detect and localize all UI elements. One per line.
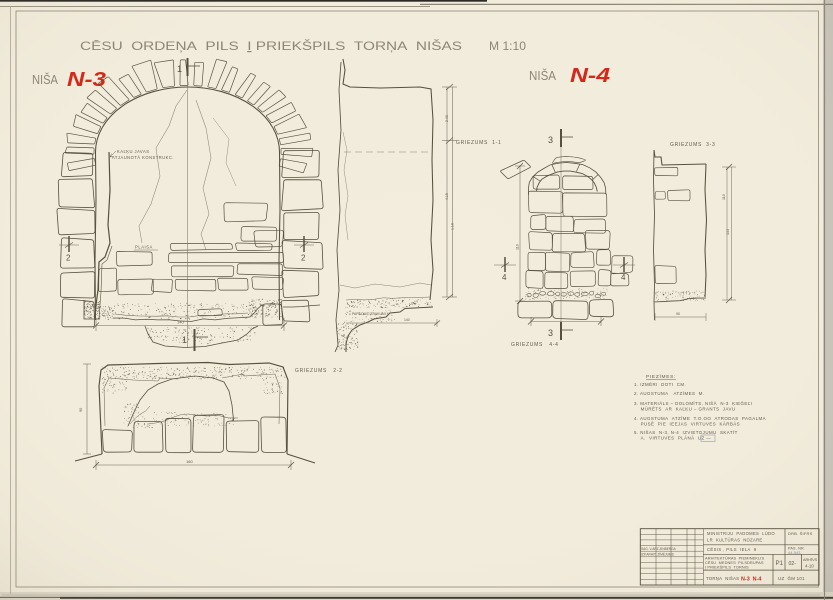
svg-text:UZ ǦM 101: UZ ǦM 101 xyxy=(778,576,805,581)
svg-text:4: 4 xyxy=(502,273,507,282)
svg-text:NIŠA: NIŠA xyxy=(529,68,557,83)
svg-text:90: 90 xyxy=(676,312,680,316)
svg-text:2. AUGSTUMA ATZĪMES M.: 2. AUGSTUMA ATZĪMES M. xyxy=(634,391,704,396)
svg-text:ATJAUNOTĀ KONSTRUKC.: ATJAUNOTĀ KONSTRUKC. xyxy=(112,155,174,160)
svg-text:1: 1 xyxy=(177,64,182,74)
svg-text:140: 140 xyxy=(177,320,184,325)
svg-text:CĒSIS , PILS IELA 9: CĒSIS , PILS IELA 9 xyxy=(707,547,757,552)
svg-text:GRIEZUMS 1-1: GRIEZUMS 1-1 xyxy=(456,140,502,146)
svg-text:4: 4 xyxy=(621,273,626,282)
svg-text:PUSĒ PIE IEEJAS VIRTUVES K: PUSĒ PIE IEEJAS VIRTUVES KĀRBĀS xyxy=(634,422,740,427)
svg-text:4. AUGSTUMA ATZĪME T.O.OO A: 4. AUGSTUMA ATZĪME T.O.OO ATRODAS PAGALM… xyxy=(634,416,766,421)
svg-text:1.10: 1.10 xyxy=(451,223,455,230)
svg-text:MŪRĒTS AR KAĽĶU – GRANTS JA: MŪRĒTS AR KAĽĶU – GRANTS JAVU xyxy=(634,407,736,412)
svg-text:5. NIŠAS N-3, N-4 IZVIETOJUM: 5. NIŠAS N-3, N-4 IZVIETOJUMU SKATĪT xyxy=(634,430,738,435)
svg-text:A. VIRTUVES PLĀNĀ UZ —: A. VIRTUVES PLĀNĀ UZ — xyxy=(634,436,711,441)
svg-text:LR KULTŪRAS NOZARE: LR KULTŪRAS NOZARE xyxy=(707,538,762,543)
svg-text:90: 90 xyxy=(79,408,83,412)
svg-text:110: 110 xyxy=(722,194,726,200)
svg-text:N-3: N-3 xyxy=(67,69,106,91)
svg-text:PLAISA: PLAISA xyxy=(135,245,153,250)
svg-text:KAĽĶU JAVAS: KAĽĶU JAVAS xyxy=(117,149,149,154)
svg-text:160: 160 xyxy=(186,459,193,464)
svg-text:DRB. ŠIFRS: DRB. ŠIFRS xyxy=(788,531,813,536)
svg-text:1. IZMĒRI DOTI CM.: 1. IZMĒRI DOTI CM. xyxy=(634,382,686,387)
svg-text:2: 2 xyxy=(66,254,71,263)
svg-text:2: 2 xyxy=(301,254,306,263)
svg-text:GRIEZUMS 2-2: GRIEZUMS 2-2 xyxy=(295,368,343,374)
svg-text:4-10: 4-10 xyxy=(805,564,814,569)
svg-text:3: 3 xyxy=(548,135,553,145)
svg-text:P1: P1 xyxy=(776,560,784,567)
svg-text:PAS. NR.: PAS. NR. xyxy=(788,547,805,551)
svg-text:44-543: 44-543 xyxy=(788,551,801,555)
svg-text:ARHĪVS: ARHĪVS xyxy=(803,558,818,562)
svg-text:N-4: N-4 xyxy=(570,65,610,87)
svg-text:110: 110 xyxy=(516,244,520,250)
svg-text:4.15: 4.15 xyxy=(445,193,449,200)
svg-text:TORŅA NIŠAS: TORŅA NIŠAS xyxy=(706,576,739,581)
svg-text:GRIEZUMS 4-4: GRIEZUMS 4-4 xyxy=(511,342,559,348)
svg-text:3. MATERIĀLS – DOLOMĪTS, NIŠĀ: 3. MATERIĀLS – DOLOMĪTS, NIŠĀ N-3 ĶIEǦEĽ… xyxy=(634,401,752,406)
svg-text:IZP.ARHIT. ZĪMĒJUMS: IZP.ARHIT. ZĪMĒJUMS xyxy=(641,553,674,557)
svg-text:3: 3 xyxy=(548,328,553,338)
svg-text:MINISTRIJU PADOMES LŪDO: MINISTRIJU PADOMES LŪDO xyxy=(707,531,775,536)
svg-text:CĒSU ORDEŅA PILS I PRIEKŠPI: CĒSU ORDEŅA PILS I PRIEKŠPILS TORŅA NIŠA… xyxy=(80,38,462,53)
svg-text:140: 140 xyxy=(404,318,410,322)
svg-text:PAPILDUS IZRAKUMI: PAPILDUS IZRAKUMI xyxy=(352,312,386,316)
svg-text:PIEZĪMES:: PIEZĪMES: xyxy=(646,373,676,380)
svg-text:2.40: 2.40 xyxy=(445,115,449,122)
svg-text:M 1:10: M 1:10 xyxy=(489,39,526,53)
svg-text:I PRIEKŠPILS TORNIS: I PRIEKŠPILS TORNIS xyxy=(705,565,749,570)
svg-text:SAG. V.ARZ.ZINBERGA: SAG. V.ARZ.ZINBERGA xyxy=(641,547,677,551)
svg-text:GRIEZUMS 3-3: GRIEZUMS 3-3 xyxy=(670,142,716,148)
svg-text:133: 133 xyxy=(726,229,730,235)
svg-text:N-3 N-4: N-3 N-4 xyxy=(741,577,761,583)
svg-text:NIŠA: NIŠA xyxy=(32,72,59,87)
svg-text:02-: 02- xyxy=(789,561,797,567)
